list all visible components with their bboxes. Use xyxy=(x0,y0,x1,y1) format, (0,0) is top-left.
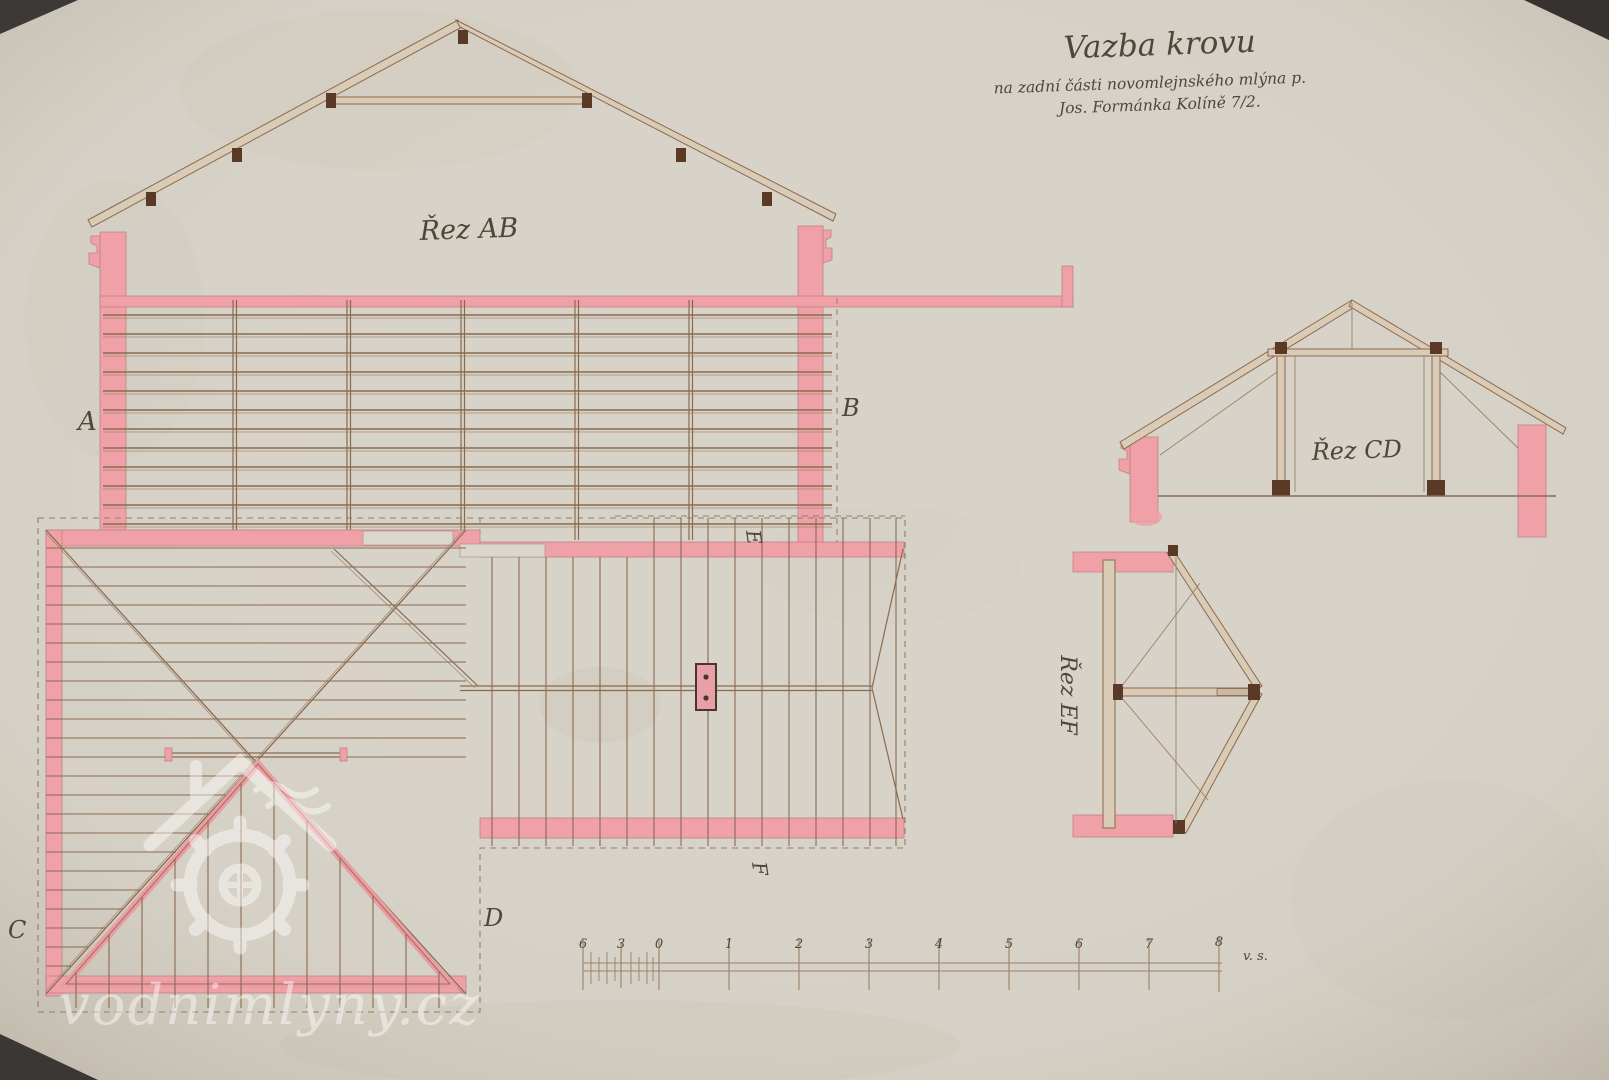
scanned-roof-truss-drawing: Řez AB A B xyxy=(0,0,1609,1080)
collar-joint-right xyxy=(582,93,592,108)
ef-beam-lap xyxy=(1217,689,1251,696)
band-opening xyxy=(460,544,545,557)
cd-right-post xyxy=(1432,356,1440,490)
ef-bottom-plate xyxy=(1073,815,1173,837)
scale-tick-label: 4 xyxy=(934,937,943,952)
scale-tick-label: 3 xyxy=(617,937,625,952)
scale-tick-label: 3 xyxy=(865,937,873,952)
purlin-block xyxy=(676,148,686,162)
ef-top-plate xyxy=(1073,552,1173,572)
left-wall xyxy=(100,232,126,540)
drawing-canvas: Řez AB A B xyxy=(0,0,1609,1080)
cd-collar xyxy=(1268,349,1448,356)
cd-right-pier xyxy=(1518,425,1546,537)
scale-tick-label: 2 xyxy=(794,937,803,952)
marker-c: C xyxy=(8,916,26,944)
cd-post-base xyxy=(1427,480,1445,496)
drawing-title: Vazba krovu xyxy=(1063,24,1256,67)
collar-joint-left xyxy=(326,93,336,108)
marker-b: B xyxy=(841,394,860,422)
collar-tie xyxy=(340,748,347,761)
cd-post-head xyxy=(1275,342,1287,354)
ef-joint xyxy=(1168,545,1178,556)
purlin-block xyxy=(232,148,242,162)
watermark-text: vodnimlyny.cz xyxy=(58,973,481,1038)
wall-plate-hook xyxy=(1062,266,1073,307)
scale-tick-label: 5 xyxy=(1005,937,1013,952)
section-cd-label: Řez CD xyxy=(1310,434,1402,466)
plan-left-band xyxy=(46,530,62,996)
scale-tick-label: 0 xyxy=(655,937,663,952)
collar-tie xyxy=(165,748,172,761)
wing-bottom-band xyxy=(480,818,904,838)
ef-joint xyxy=(1113,684,1123,700)
cd-post-base xyxy=(1272,480,1290,496)
collar-beam xyxy=(332,97,588,104)
scale-tick-label: 7 xyxy=(1145,937,1154,952)
pink-smudge xyxy=(1130,508,1162,526)
purlin-block xyxy=(146,192,156,206)
scale-tick-label: 8 xyxy=(1215,935,1223,950)
wall-plate-band xyxy=(100,296,1073,307)
marker-a: A xyxy=(76,407,97,437)
purlin-block xyxy=(762,192,772,206)
scale-tick-label: 6 xyxy=(579,937,587,952)
section-ef-label: Řez EF xyxy=(1055,654,1082,735)
scale-tick-label: 1 xyxy=(725,937,733,952)
cd-left-post xyxy=(1277,356,1285,490)
scale-unit-label: v. s. xyxy=(1243,949,1268,964)
right-wall xyxy=(798,226,823,544)
band-opening xyxy=(363,531,453,545)
ef-joint xyxy=(1248,684,1260,700)
ef-joint xyxy=(1173,820,1185,834)
section-ab-label: Řez AB xyxy=(418,211,519,247)
ridge-block xyxy=(458,30,468,44)
chimney xyxy=(696,664,716,710)
marker-d: D xyxy=(483,904,503,932)
cd-post-head xyxy=(1430,342,1442,354)
scale-tick-label: 6 xyxy=(1075,937,1083,952)
